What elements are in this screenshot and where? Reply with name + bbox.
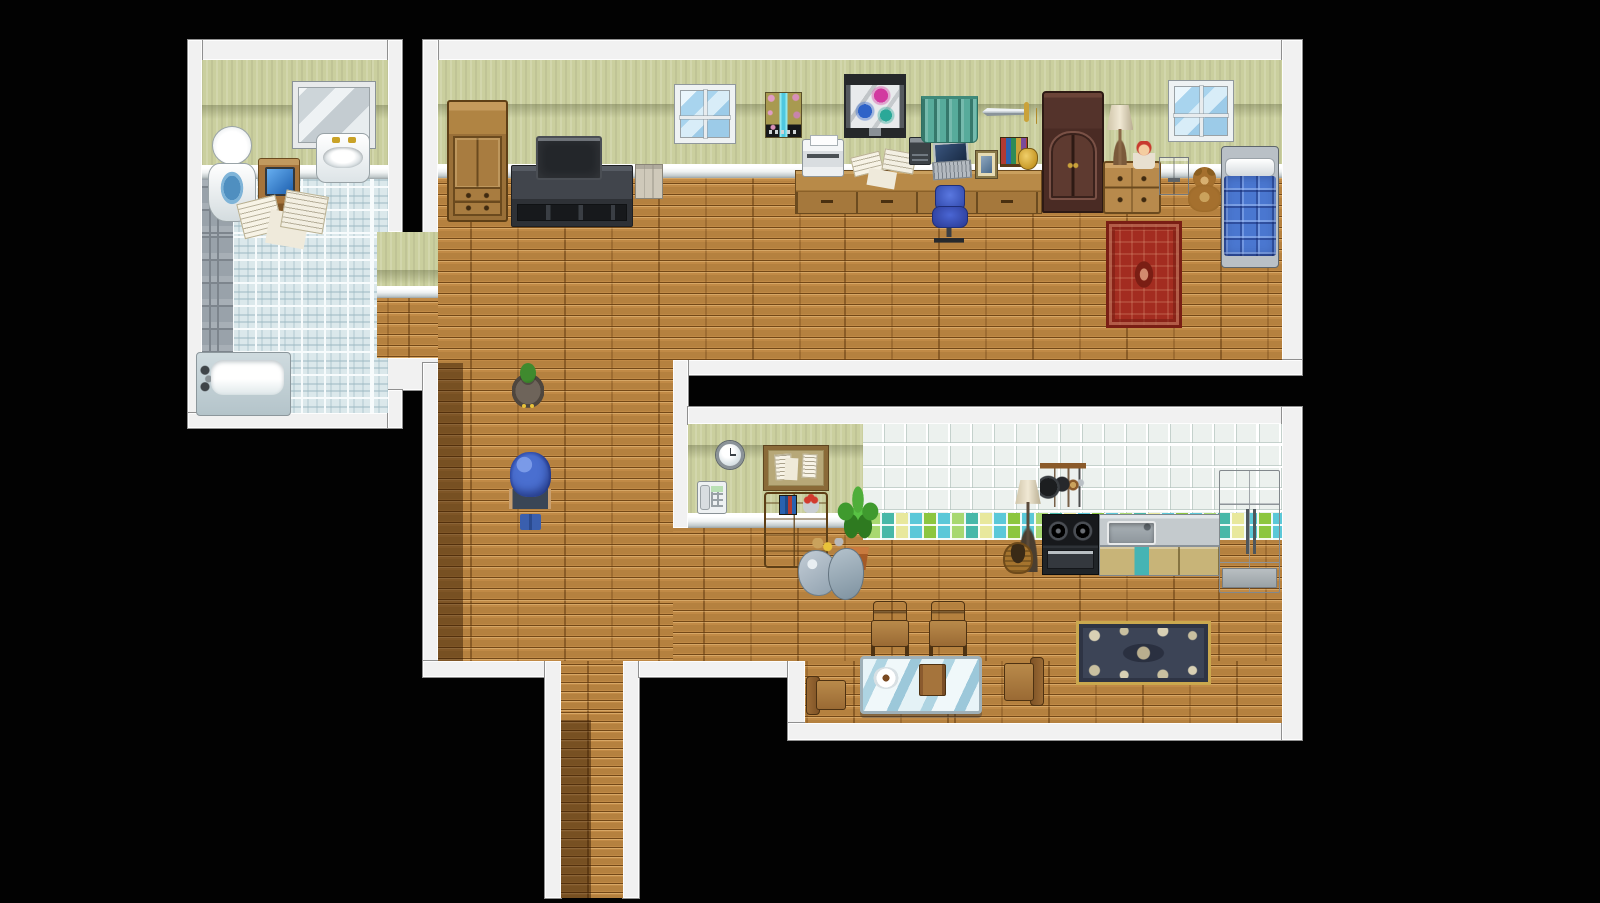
teddy-bear: [1186, 167, 1223, 213]
passage-wallpaper: [377, 232, 445, 286]
blue-bed: [1221, 146, 1279, 268]
refrigerator: [1219, 470, 1280, 593]
bedroom-wall-top: [423, 40, 1302, 60]
table-lamp: [1104, 105, 1136, 165]
mid-wall-bottom-band: [639, 661, 788, 677]
player-hero-blue-hair[interactable]: [508, 452, 553, 530]
dining-chair-east: [1004, 655, 1044, 711]
kitchen-wall-right: [1282, 407, 1302, 740]
gray-nightstand: [1159, 157, 1189, 195]
file-organizer: [635, 164, 663, 199]
wall-phone: [697, 481, 727, 514]
wall-poster: [765, 92, 802, 138]
dining-chair-west: [806, 674, 846, 718]
window-bedroom-right: [1169, 81, 1233, 141]
passage-floor: [377, 298, 445, 358]
laptop: [931, 141, 973, 183]
corridor-wall-right: [623, 661, 639, 898]
glass-dining-table: [860, 656, 982, 714]
passage-wall-band-lower: [388, 390, 402, 428]
photo-frame: [976, 151, 997, 178]
corkboard: [764, 446, 828, 490]
passage-wall-trim: [377, 286, 445, 298]
window-bedroom-left: [675, 85, 735, 143]
red-haired-doll: [1133, 141, 1155, 169]
kitchen-wall-left-lower: [788, 661, 805, 723]
bathroom-wall-top: [188, 40, 402, 60]
game-viewport: [0, 0, 1600, 903]
game-map[interactable]: [0, 0, 1600, 903]
wall-sword: [982, 102, 1042, 122]
stove: [1042, 514, 1099, 575]
pot-rack: [1040, 463, 1086, 507]
kitchen-wall-top: [688, 407, 1302, 424]
ornate-dark-rug: [1076, 621, 1211, 685]
red-rug: [1106, 221, 1182, 328]
television: [536, 136, 602, 180]
hallway-floor: [438, 360, 673, 661]
kitchen-wall-left-cap: [673, 360, 688, 528]
wardrobe: [447, 100, 508, 222]
basket-pot: [1003, 542, 1033, 574]
bathroom-sink: [316, 133, 370, 183]
corridor-wall-shadow: [561, 720, 591, 898]
npc-duck[interactable]: [512, 363, 544, 408]
bathroom-wall-right-upper: [388, 40, 402, 232]
kitchen-wall-bottom: [788, 723, 1302, 740]
sink-counter: [1099, 514, 1220, 576]
bedroom-wall-bottom: [673, 360, 1302, 375]
dresser: [1103, 161, 1161, 214]
bedroom-wall-right: [1282, 40, 1302, 375]
gold-jug: [1018, 148, 1038, 170]
office-chair: [929, 185, 969, 243]
butterfly-picture: [846, 76, 904, 136]
bathtub: [196, 352, 291, 416]
wall-clock: [716, 441, 744, 469]
dining-chair-north-2: [929, 601, 967, 658]
scattered-magazines: [240, 193, 330, 251]
trash-bags: [798, 538, 864, 600]
corridor-wall-left: [545, 661, 561, 898]
hallway-wall-shadow: [438, 363, 463, 661]
hallway-wall-bottom: [423, 661, 545, 677]
dark-armoire: [1042, 91, 1104, 213]
dining-chair-north-1: [871, 601, 909, 658]
hallway-wall-left: [423, 363, 438, 677]
green-curtain: [921, 96, 978, 143]
printer: [802, 139, 844, 177]
